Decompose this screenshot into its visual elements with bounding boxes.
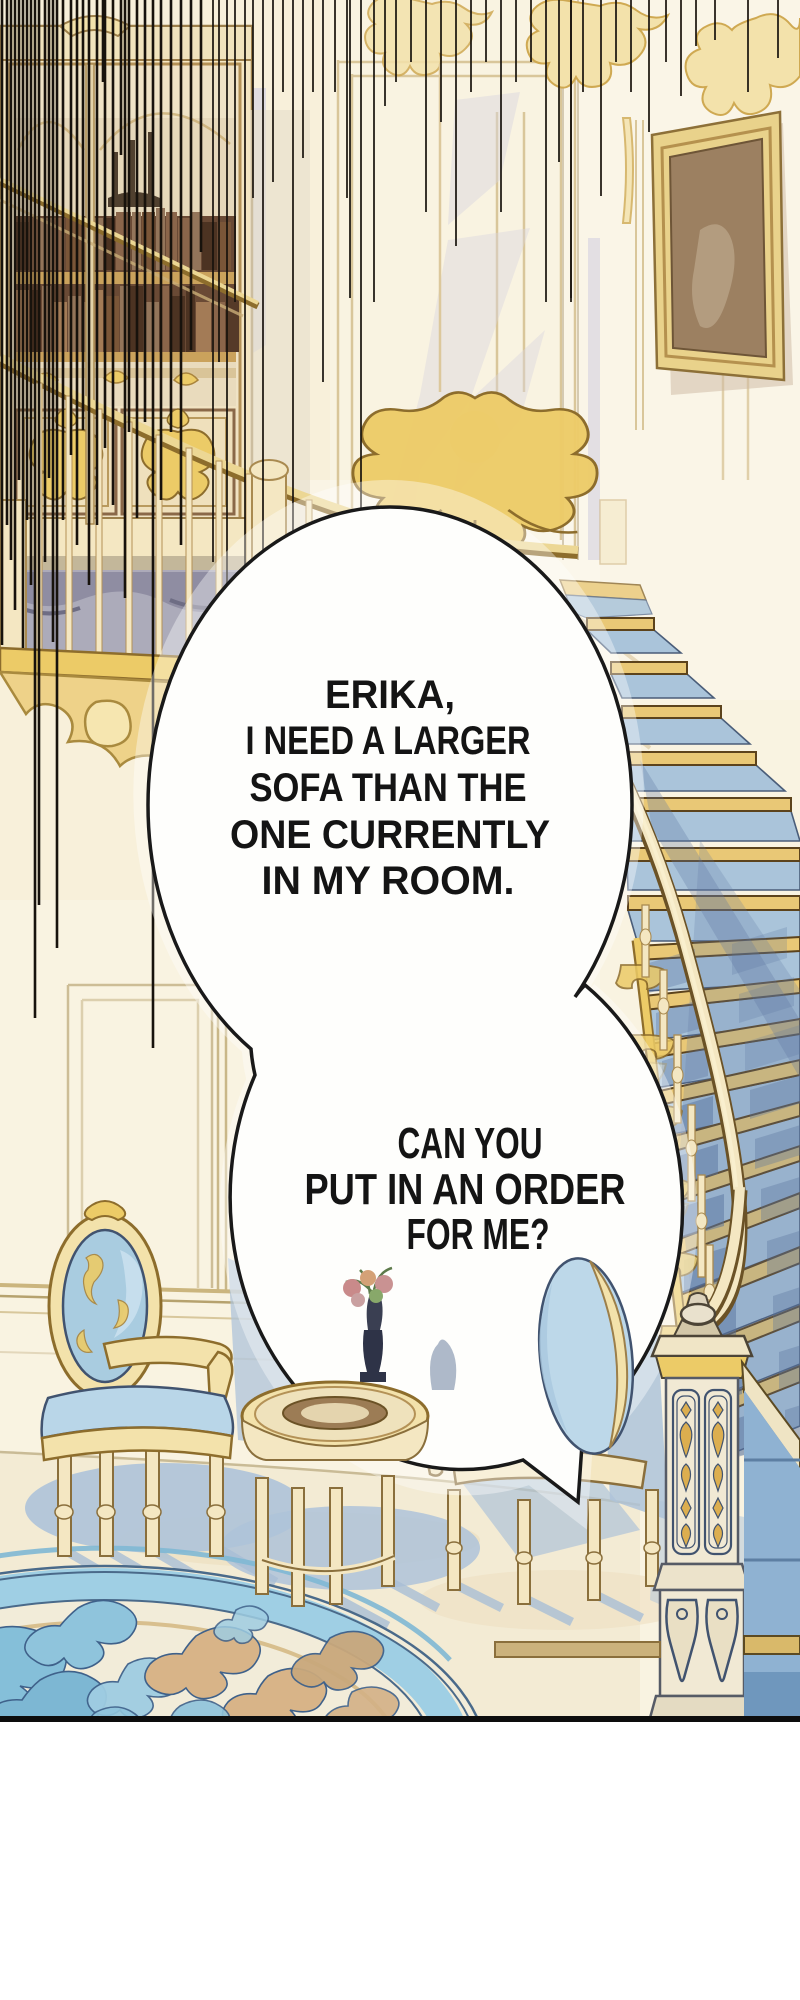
svg-text:PUT IN AN ORDER: PUT IN AN ORDER [305, 1165, 626, 1214]
svg-text:IN MY ROOM.: IN MY ROOM. [262, 859, 515, 903]
svg-text:I NEED A LARGER: I NEED A LARGER [246, 719, 531, 763]
svg-text:ONE CURRENTLY: ONE CURRENTLY [230, 813, 550, 857]
svg-text:FOR ME?: FOR ME? [407, 1210, 550, 1259]
svg-text:SOFA THAN THE: SOFA THAN THE [250, 766, 527, 810]
svg-text:CAN YOU: CAN YOU [398, 1119, 543, 1168]
svg-text:ERIKA,: ERIKA, [325, 673, 455, 717]
